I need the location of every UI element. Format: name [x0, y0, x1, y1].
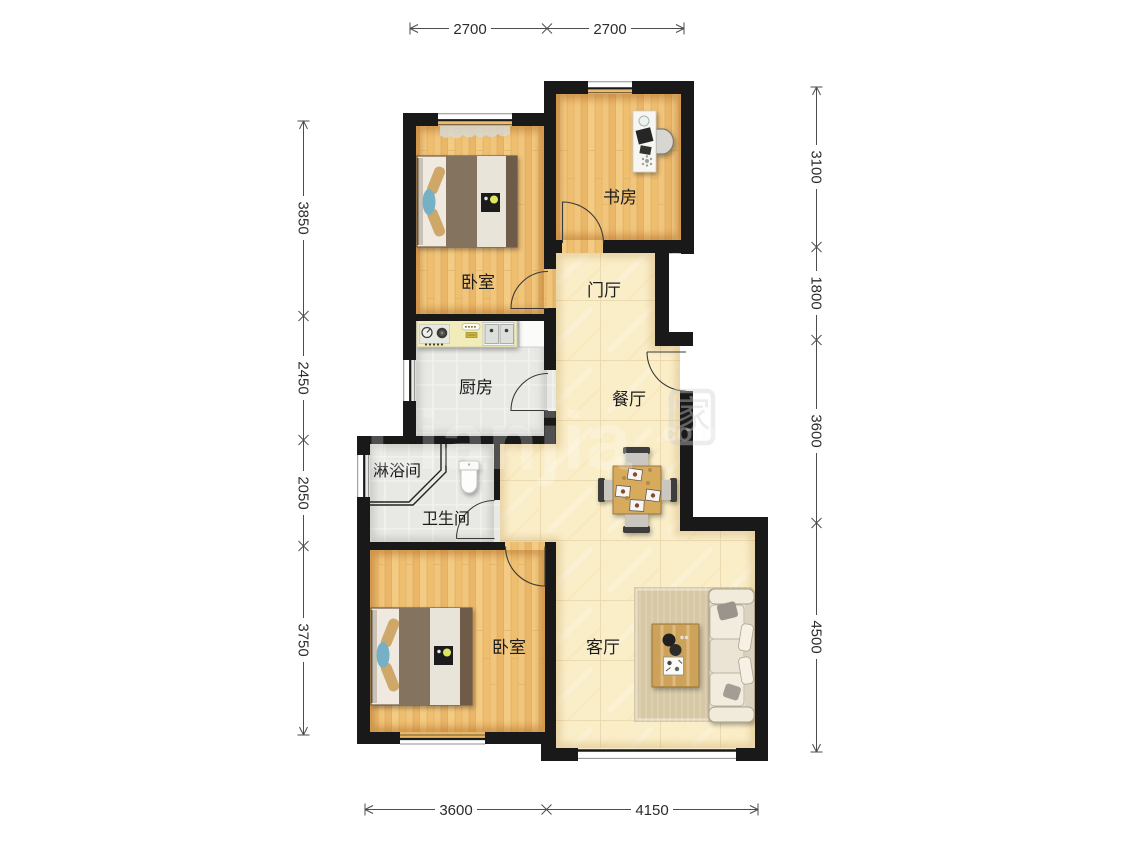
svg-text:2700: 2700 [593, 21, 626, 38]
svg-text:3600: 3600 [439, 802, 472, 819]
svg-text:.com: .com [655, 417, 716, 447]
svg-text:客厅: 客厅 [586, 638, 620, 657]
svg-text:3100: 3100 [808, 150, 825, 183]
svg-text:门厅: 门厅 [587, 281, 621, 300]
svg-text:4150: 4150 [635, 802, 668, 819]
svg-text:3850: 3850 [295, 201, 312, 234]
svg-text:厨房: 厨房 [459, 378, 493, 397]
svg-text:1800: 1800 [808, 276, 825, 309]
svg-text:卧室: 卧室 [461, 273, 495, 292]
svg-text:Lianjia: Lianjia [366, 396, 633, 487]
svg-text:卧室: 卧室 [492, 638, 526, 657]
svg-text:4500: 4500 [808, 620, 825, 653]
svg-text:3600: 3600 [808, 414, 825, 447]
svg-text:2700: 2700 [453, 21, 486, 38]
svg-text:2450: 2450 [295, 361, 312, 394]
svg-text:书房: 书房 [603, 188, 637, 207]
svg-text:2050: 2050 [295, 476, 312, 509]
svg-text:卫生间: 卫生间 [422, 510, 470, 528]
svg-text:3750: 3750 [295, 623, 312, 656]
